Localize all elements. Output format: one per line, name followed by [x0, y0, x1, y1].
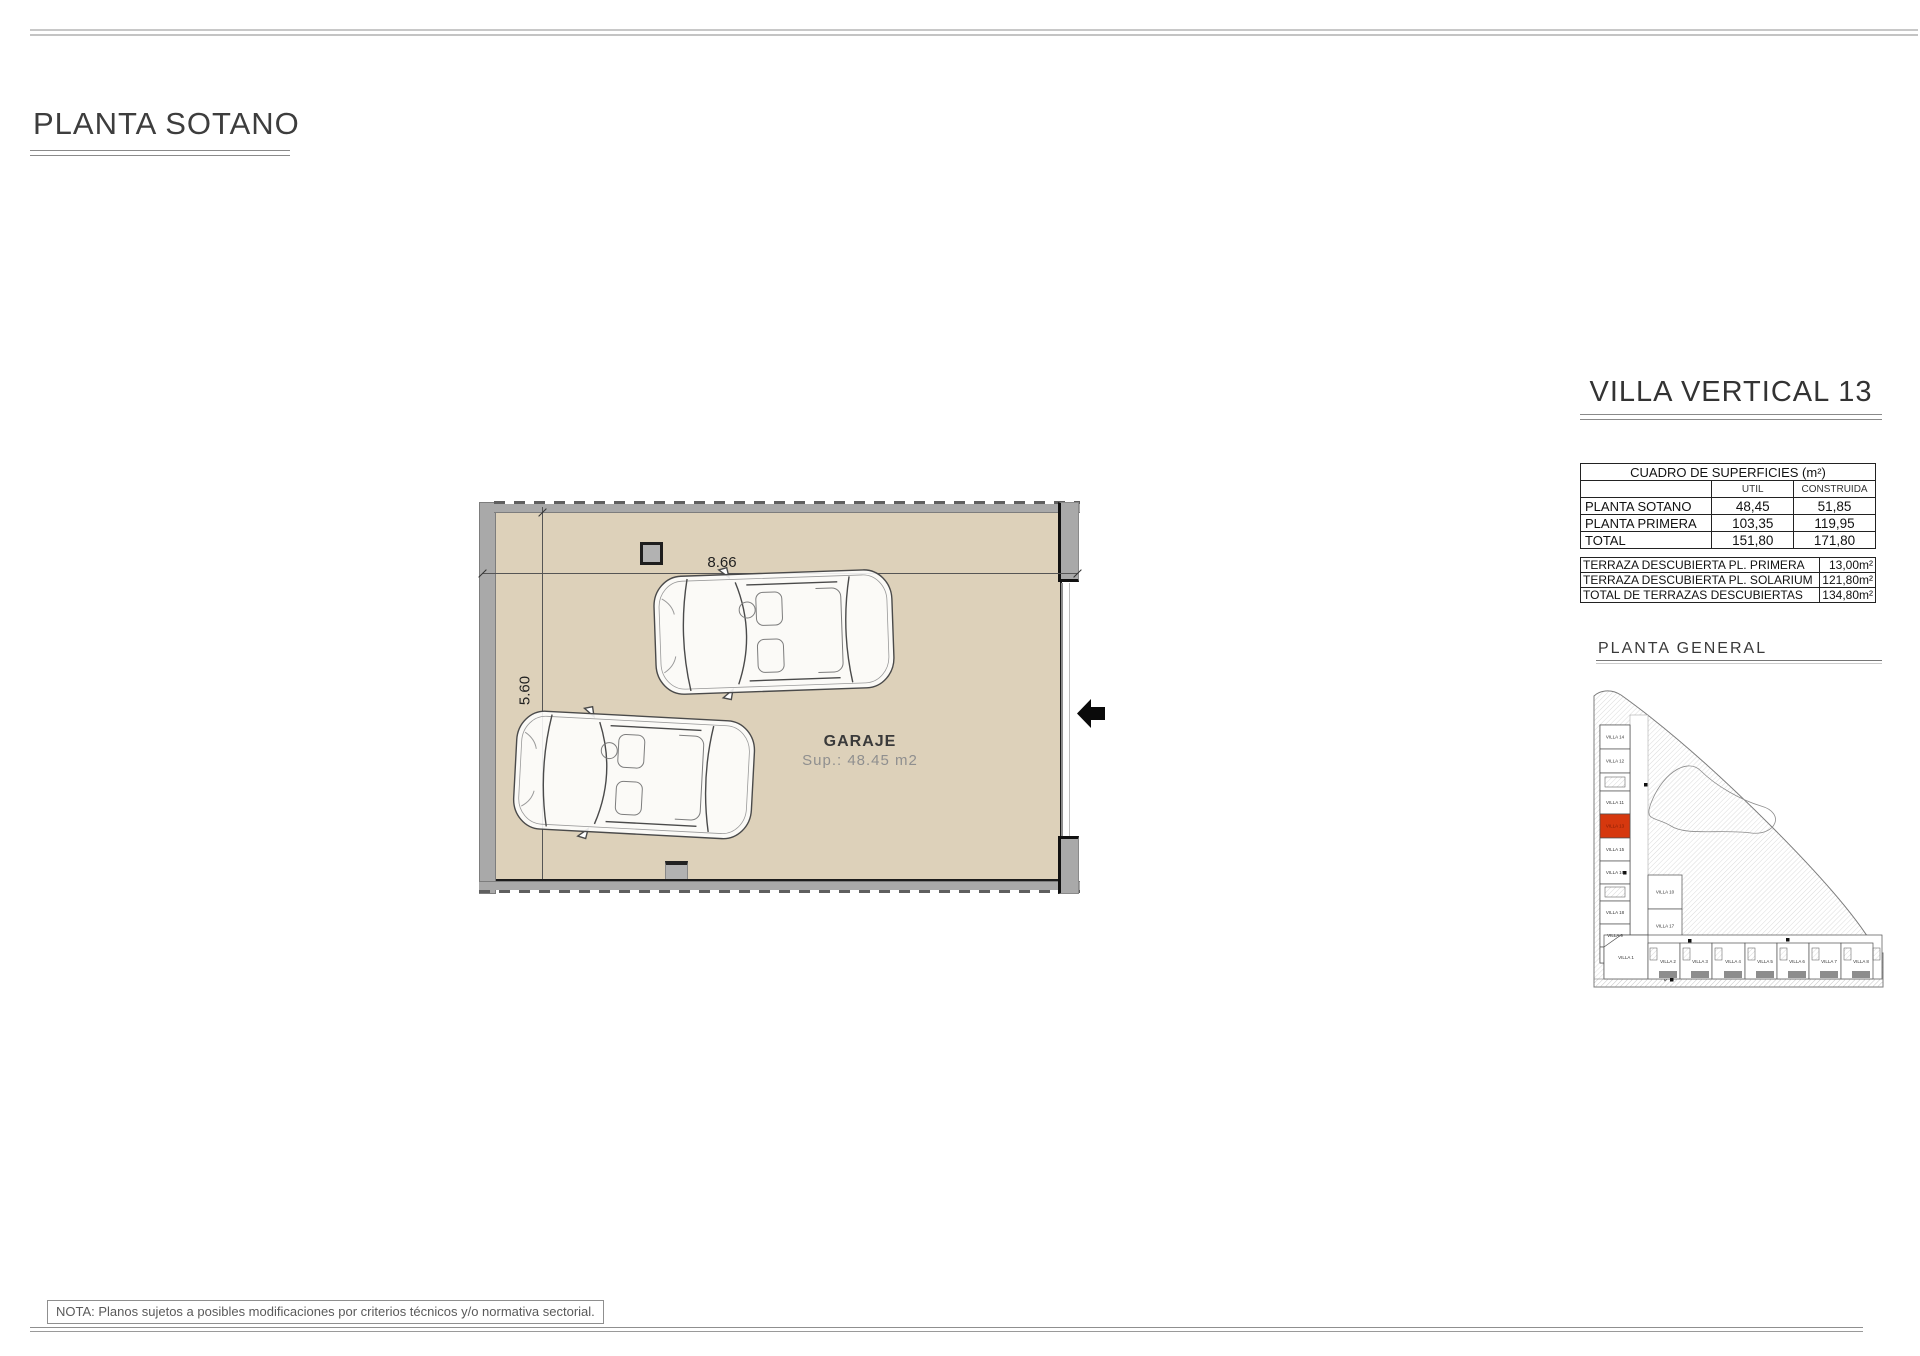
terrace-value: 134,80m²	[1820, 588, 1876, 603]
terrace-row-label: TOTAL DE TERRAZAS DESCUBIERTAS	[1581, 588, 1820, 603]
col-header-construida: CONSTRUIDA	[1794, 481, 1876, 498]
villa-cell: VILLA 9	[1607, 933, 1623, 938]
villa-title-underline	[1580, 414, 1882, 420]
surface-construida-value: 119,95	[1794, 515, 1876, 532]
table-row: TERRAZA DESCUBIERTA PL. PRIMERA 13,00m²	[1581, 558, 1876, 573]
siteplan-title: PLANTA GENERAL	[1598, 640, 1767, 658]
villa-cell: VILLA 18	[1606, 910, 1625, 915]
entry-arrow-icon	[1077, 697, 1105, 730]
villa-cell: VILLA 14	[1606, 735, 1625, 740]
table-row: TERRAZA DESCUBIERTA PL. SOLARIUM 121,80m…	[1581, 573, 1876, 588]
car-top	[653, 562, 895, 702]
villa-cell: VILLA 8	[1853, 959, 1869, 964]
villa-cell: VILLA 17	[1656, 924, 1675, 929]
terrace-row-label: TERRAZA DESCUBIERTA PL. SOLARIUM	[1581, 573, 1820, 588]
terrace-value: 121,80m²	[1820, 573, 1876, 588]
bottom-rule	[30, 1327, 1863, 1332]
villa-cell: VILLA 1	[1618, 955, 1634, 960]
table-row: PLANTA PRIMERA 103,35 119,95	[1581, 515, 1876, 532]
surface-row-label: TOTAL	[1581, 532, 1712, 549]
sheet: PLANTA SOTANO 8.66 5.60 GARAJE Sup.: 48.…	[0, 0, 1920, 1356]
surface-row-label: PLANTA PRIMERA	[1581, 515, 1712, 532]
surface-construida-value: 171,80	[1794, 532, 1876, 549]
surface-row-label: PLANTA SOTANO	[1581, 498, 1712, 515]
note-text: NOTA: Planos sujetos a posibles modifica…	[56, 1304, 595, 1319]
top-rule	[30, 29, 1918, 36]
surface-util-value: 151,80	[1712, 532, 1794, 549]
villa-cell-highlighted: VILLA 13	[1606, 824, 1625, 829]
table-row: PLANTA SOTANO 48,45 51,85	[1581, 498, 1876, 515]
table-row: TOTAL 151,80 171,80	[1581, 532, 1876, 549]
site-driveway	[1630, 715, 1648, 965]
note-box: NOTA: Planos sujetos a posibles modifica…	[47, 1300, 604, 1324]
villa-cell: VILLA 4	[1725, 959, 1741, 964]
surface-construida-value: 51,85	[1794, 498, 1876, 515]
villa-cell: VILLA 6	[1789, 959, 1805, 964]
villa-cell: VILLA 15	[1606, 847, 1625, 852]
site-plan: VILLA 14 VILLA 12 VILLA 11 VILLA 13 VILL…	[1590, 685, 1900, 1010]
table-row: TOTAL DE TERRAZAS DESCUBIERTAS 134,80m²	[1581, 588, 1876, 603]
villa-cell: VILLA 12	[1606, 759, 1625, 764]
villa-cell: VILLA 7	[1821, 959, 1837, 964]
terrace-value: 13,00m²	[1820, 558, 1876, 573]
surfaces-table-title: CUADRO DE SUPERFICIES (m²)	[1581, 464, 1876, 481]
villa-title: VILLA VERTICAL 13	[1580, 376, 1882, 409]
surface-util-value: 103,35	[1712, 515, 1794, 532]
col-header-util: UTIL	[1712, 481, 1794, 498]
villa-cell: VILLA 3	[1692, 959, 1708, 964]
surfaces-table: CUADRO DE SUPERFICIES (m²) UTIL CONSTRUI…	[1580, 463, 1876, 549]
page-title-underline	[30, 150, 290, 156]
villa-cell: VILLA 10	[1656, 890, 1675, 895]
villa-cell: VILLA 2	[1660, 959, 1676, 964]
villa-cell: VILLA 5	[1757, 959, 1773, 964]
cars-drawing	[480, 500, 1080, 900]
terrace-row-label: TERRAZA DESCUBIERTA PL. PRIMERA	[1581, 558, 1820, 573]
villa-cell: VILLA 11	[1606, 800, 1624, 805]
terraces-table: TERRAZA DESCUBIERTA PL. PRIMERA 13,00m² …	[1580, 557, 1876, 603]
surface-util-value: 48,45	[1712, 498, 1794, 515]
car-bottom	[512, 703, 757, 847]
siteplan-title-underline	[1596, 660, 1882, 664]
villa-cell: VILLA 16	[1606, 870, 1625, 875]
page-title: PLANTA SOTANO	[33, 106, 300, 142]
